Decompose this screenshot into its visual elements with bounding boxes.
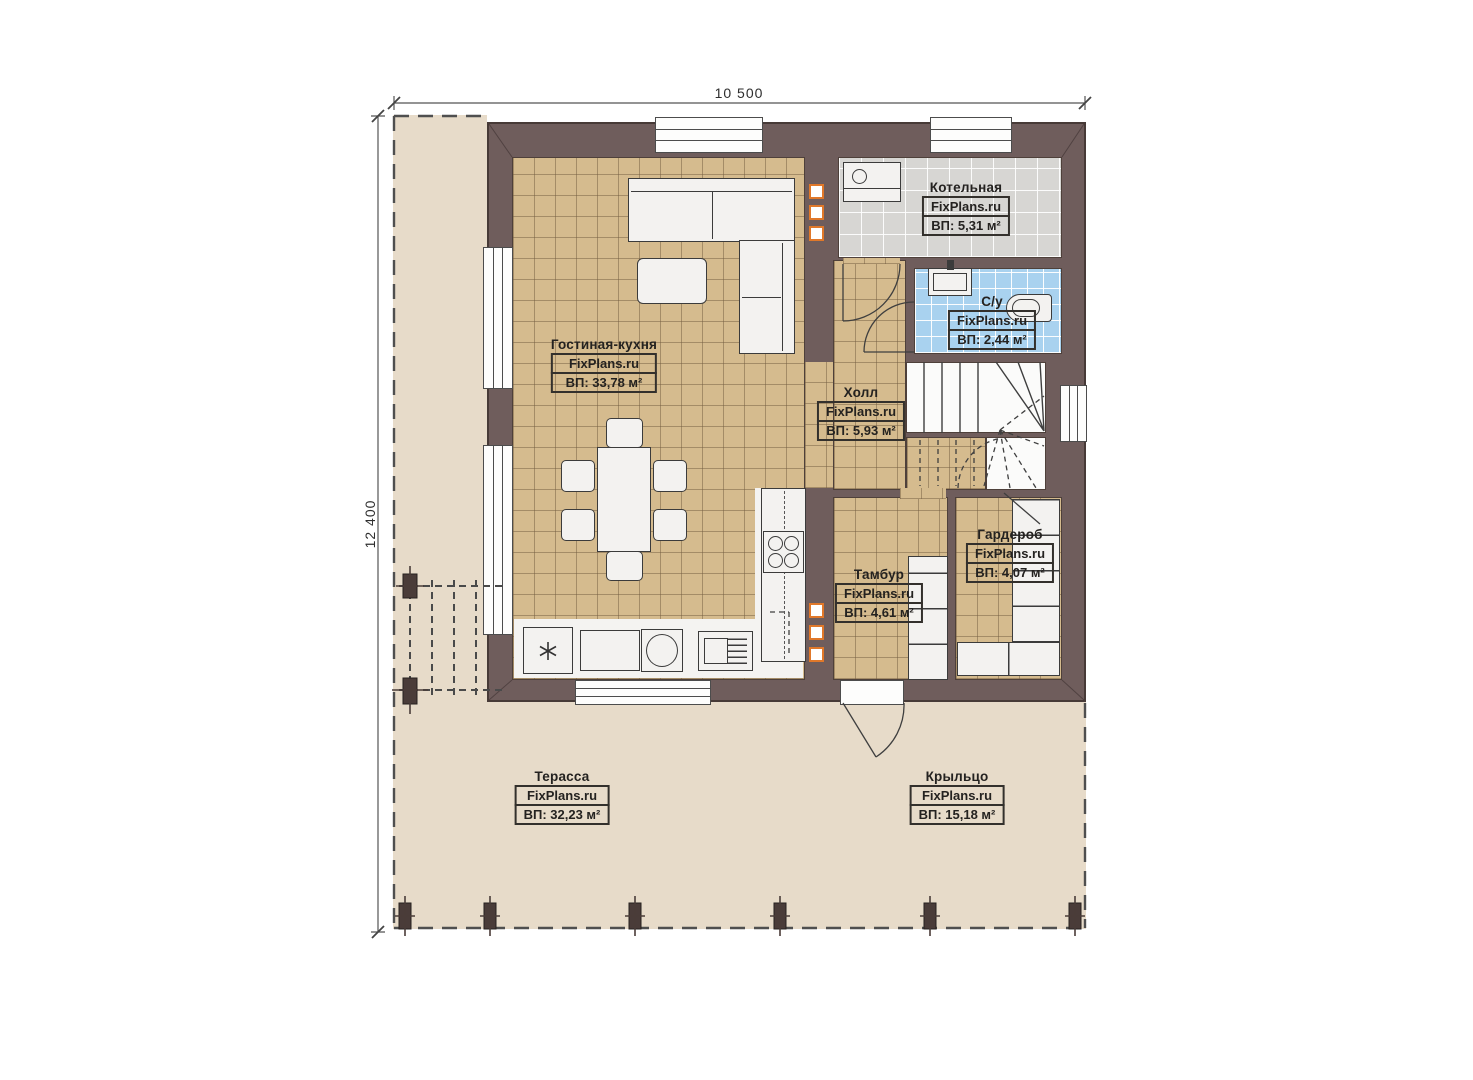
dishwasher xyxy=(698,631,753,671)
room-area: ВП: 5,93 м² xyxy=(817,420,905,441)
vent-marker-icon xyxy=(809,625,824,640)
dining-chair xyxy=(653,460,687,492)
dimension-height: 12 400 xyxy=(362,500,378,549)
room-title: Терасса xyxy=(515,769,610,784)
counter-centerline xyxy=(784,491,785,659)
stairs-upper-flight xyxy=(906,362,1046,433)
boiler-unit xyxy=(843,162,901,202)
room-title: Гостиная-кухня xyxy=(551,337,657,352)
appliance-door xyxy=(704,638,728,664)
burner xyxy=(784,553,799,568)
sofa-back-line xyxy=(782,243,783,351)
brand-watermark: FixPlans.ru xyxy=(966,543,1054,564)
dining-table xyxy=(597,447,651,552)
faucet xyxy=(947,260,954,270)
burner xyxy=(768,553,783,568)
sofa-vertical xyxy=(739,240,795,354)
sink-bowl xyxy=(646,634,678,667)
sofa-horizontal xyxy=(628,178,795,242)
brand-watermark: FixPlans.ru xyxy=(515,785,610,806)
boiler-line xyxy=(844,188,900,189)
vent-marker-icon xyxy=(809,226,824,241)
label-terrace: Терасса FixPlans.ru ВП: 32,23 м² xyxy=(515,769,610,825)
room-title: Крыльцо xyxy=(910,769,1005,784)
label-living-kitchen: Гостиная-кухня FixPlans.ru ВП: 33,78 м² xyxy=(551,337,657,393)
brand-watermark: FixPlans.ru xyxy=(835,583,923,604)
boiler-dial xyxy=(852,169,867,184)
brand-watermark: FixPlans.ru xyxy=(910,785,1005,806)
room-area: ВП: 15,18 м² xyxy=(910,804,1005,825)
floor-plan-canvas: Гостиная-кухня FixPlans.ru ВП: 33,78 м² … xyxy=(0,0,1473,1080)
burner xyxy=(768,536,783,551)
window-top-living xyxy=(655,117,763,153)
kitchen-counter xyxy=(580,630,640,671)
vent-marker-icon xyxy=(809,205,824,220)
window-left-upper xyxy=(483,247,513,389)
entrance-door-opening xyxy=(840,680,904,705)
room-title: Тамбур xyxy=(835,567,923,582)
window-terrace-door xyxy=(575,680,711,705)
room-area: ВП: 4,07 м² xyxy=(966,562,1054,583)
room-area: ВП: 32,23 м² xyxy=(515,804,610,825)
room-title: С/у xyxy=(948,294,1036,309)
vent-marker-icon xyxy=(809,184,824,199)
snowflake-icon xyxy=(538,641,558,661)
kitchen-peninsula-counter xyxy=(761,488,806,662)
room-title: Котельная xyxy=(922,180,1010,195)
label-wardrobe: Гардероб FixPlans.ru ВП: 4,07 м² xyxy=(966,527,1054,583)
label-bathroom: С/у FixPlans.ru ВП: 2,44 м² xyxy=(948,294,1036,350)
room-area: ВП: 33,78 м² xyxy=(551,372,657,393)
window-right-stairs xyxy=(1060,385,1087,442)
window-left-lower xyxy=(483,445,513,635)
brand-watermark: FixPlans.ru xyxy=(817,401,905,422)
brand-watermark: FixPlans.ru xyxy=(922,196,1010,217)
room-title: Гардероб xyxy=(966,527,1054,542)
room-hall-floor xyxy=(833,260,906,490)
vent-marker-icon xyxy=(809,647,824,662)
vent-marker-icon xyxy=(809,603,824,618)
dimension-width: 10 500 xyxy=(715,85,764,101)
dining-chair xyxy=(561,460,595,492)
wardrobe-cabinet-bottom xyxy=(957,642,1060,676)
dining-chair xyxy=(606,418,643,448)
brand-watermark: FixPlans.ru xyxy=(948,310,1036,331)
sofa-seat-divider xyxy=(742,297,781,298)
label-vestibule: Тамбур FixPlans.ru ВП: 4,61 м² xyxy=(835,567,923,623)
room-area: ВП: 4,61 м² xyxy=(835,602,923,623)
stairs-lower-area xyxy=(906,437,986,490)
label-porch: Крыльцо FixPlans.ru ВП: 15,18 м² xyxy=(910,769,1005,825)
stairs-winder-area xyxy=(986,437,1046,490)
bathroom-sink xyxy=(928,268,972,296)
burner xyxy=(784,536,799,551)
dining-chair xyxy=(561,509,595,541)
fridge xyxy=(523,627,573,674)
sink-basin xyxy=(933,273,967,291)
hall-vestibule-opening xyxy=(900,488,946,499)
label-boiler: Котельная FixPlans.ru ВП: 5,31 м² xyxy=(922,180,1010,236)
sofa-seat-divider xyxy=(712,191,713,239)
cooktop xyxy=(763,531,804,573)
brand-watermark: FixPlans.ru xyxy=(551,353,657,374)
appliance-grill xyxy=(727,638,747,664)
room-area: ВП: 2,44 м² xyxy=(948,329,1036,350)
window-top-boiler xyxy=(930,117,1012,153)
coffee-table xyxy=(637,258,707,304)
dining-chair xyxy=(606,551,643,581)
room-area: ВП: 5,31 м² xyxy=(922,215,1010,236)
dining-chair xyxy=(653,509,687,541)
kitchen-sink xyxy=(641,629,683,672)
label-hall: Холл FixPlans.ru ВП: 5,93 м² xyxy=(817,385,905,441)
room-title: Холл xyxy=(817,385,905,400)
